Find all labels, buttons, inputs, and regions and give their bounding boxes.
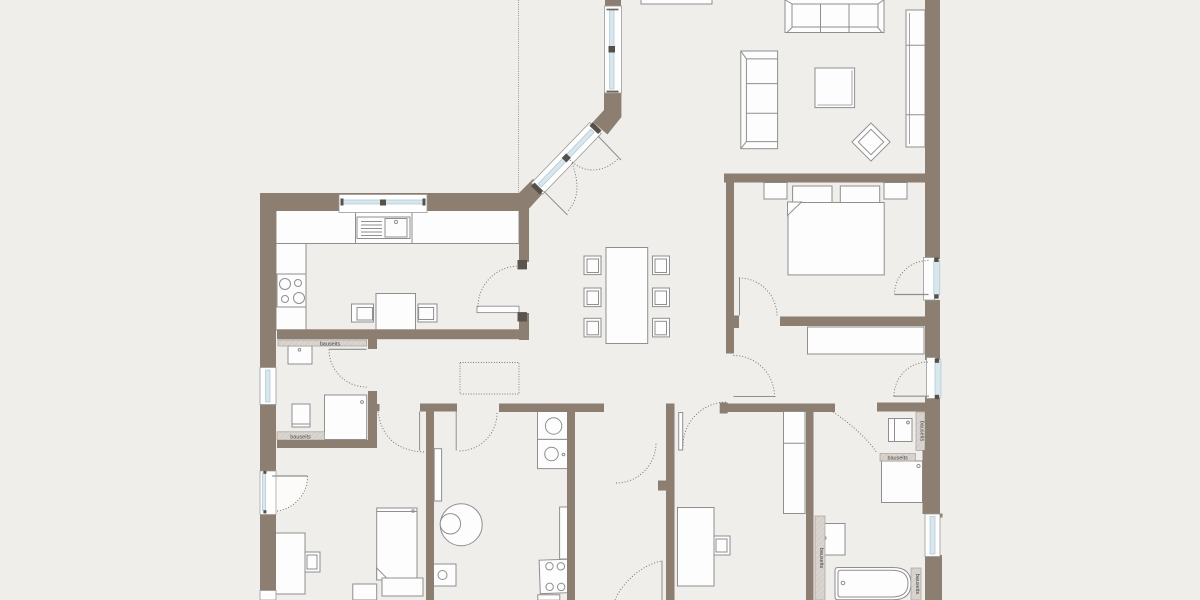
svg-text:bauseits: bauseits <box>290 435 311 441</box>
svg-text:bauseits: bauseits <box>818 548 824 569</box>
svg-text:bauseits: bauseits <box>919 421 925 442</box>
svg-text:bauseits: bauseits <box>887 456 908 462</box>
svg-text:bauseits: bauseits <box>914 574 920 595</box>
svg-text:bauseits: bauseits <box>320 342 341 348</box>
